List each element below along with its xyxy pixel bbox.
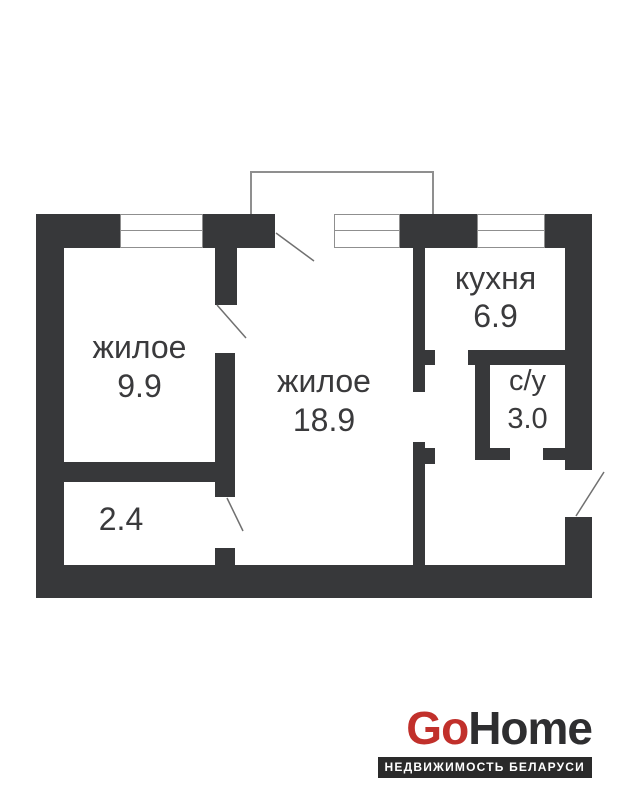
- wall-interior-c-upper: [413, 248, 425, 392]
- floorplan-canvas: жилое 9.9 жилое 18.9 кухня 6.9 с/у 3.0 2…: [0, 0, 640, 800]
- wall-right-outer-upper: [565, 248, 592, 470]
- wall-interior-a-upper-stub: [215, 248, 237, 305]
- balcony-outline: [250, 171, 434, 214]
- room-name: жилое: [235, 362, 413, 401]
- wall-top-segment-3: [400, 214, 477, 248]
- room-area: 6.9: [426, 297, 565, 335]
- door-swing-entrance: [576, 472, 604, 516]
- wall-interior-b-horizontal: [64, 462, 215, 482]
- door-swing-hallway: [227, 498, 243, 531]
- logo-wordmark: GoHome: [378, 704, 592, 752]
- gohome-logo: GoHome НЕДВИЖИМОСТЬ БЕЛАРУСИ: [378, 704, 592, 778]
- wall-bottom-outer: [36, 565, 592, 598]
- room-label-living-small: жилое 9.9: [64, 328, 215, 406]
- door-swing-balcony: [276, 233, 314, 261]
- wall-bathroom-bottom-right: [543, 448, 565, 460]
- logo-go-text: Go: [406, 702, 468, 754]
- window-room-18-9: [334, 214, 400, 248]
- room-name: кухня: [426, 259, 565, 297]
- wall-interior-c-lower: [413, 442, 425, 565]
- room-name: с/у: [490, 362, 565, 400]
- wall-left-outer: [36, 214, 64, 598]
- door-swing-room-9-9: [217, 305, 246, 338]
- wall-kitchen-bottom-stub: [425, 350, 435, 365]
- wall-interior-a-lower-stub: [215, 548, 235, 565]
- room-area: 9.9: [64, 367, 215, 406]
- room-area: 3.0: [490, 400, 565, 438]
- wall-bathroom-left: [475, 365, 490, 448]
- wall-top-corner: [545, 214, 592, 248]
- wall-interior-a-main: [215, 353, 235, 497]
- window-room-9-9: [120, 214, 203, 248]
- wall-top-segment-2: [203, 214, 275, 248]
- room-label-bathroom: с/у 3.0: [490, 362, 565, 438]
- room-label-kitchen: кухня 6.9: [426, 259, 565, 335]
- room-area: 18.9: [235, 401, 413, 440]
- logo-home-text: Home: [468, 702, 592, 754]
- wall-bathroom-bottom-left: [475, 448, 510, 460]
- wall-right-entrance-jamb: [565, 517, 592, 565]
- room-label-living-large: жилое 18.9: [235, 362, 413, 440]
- window-kitchen: [477, 214, 545, 248]
- wall-interior-c-doorframe-stub: [425, 448, 435, 464]
- logo-tagline: НЕДВИЖИМОСТЬ БЕЛАРУСИ: [378, 757, 592, 778]
- room-area: 2.4: [64, 499, 178, 539]
- room-name: жилое: [64, 328, 215, 367]
- room-label-hallway: 2.4: [64, 499, 178, 539]
